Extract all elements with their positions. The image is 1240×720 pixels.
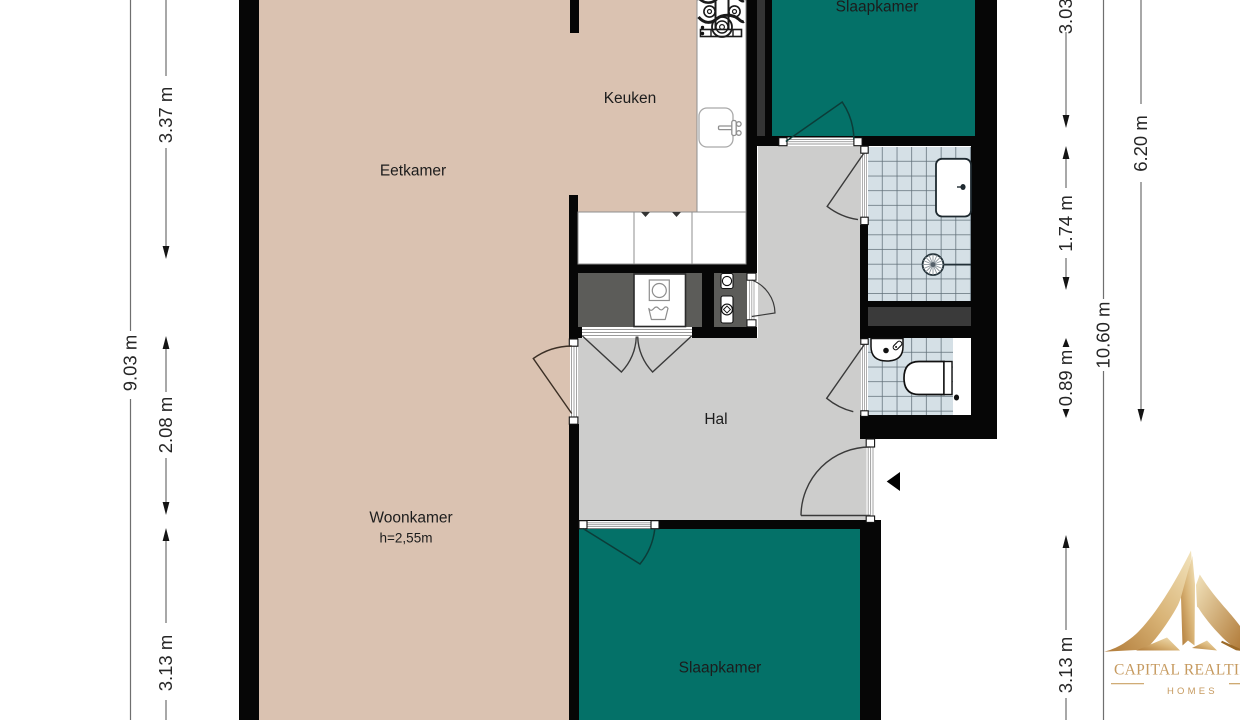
svg-text:1.74 m: 1.74 m (1055, 195, 1076, 252)
svg-text:Slaapkamer: Slaapkamer (679, 660, 762, 677)
svg-text:Eetkamer: Eetkamer (380, 163, 446, 180)
svg-text:10.60 m: 10.60 m (1093, 302, 1114, 369)
svg-text:Hal: Hal (704, 411, 727, 428)
svg-text:CAPITAL REALTIES: CAPITAL REALTIES (1114, 662, 1240, 679)
svg-text:Slaapkamer: Slaapkamer (836, 0, 919, 16)
svg-text:0.89 m: 0.89 m (1055, 350, 1076, 407)
svg-text:Keuken: Keuken (604, 90, 657, 107)
svg-text:3.03 m: 3.03 m (1055, 0, 1076, 34)
svg-text:Woonkamer: Woonkamer (369, 510, 452, 527)
svg-text:3.37 m: 3.37 m (155, 87, 176, 144)
svg-text:6.20 m: 6.20 m (1130, 115, 1151, 172)
svg-text:3.13 m: 3.13 m (1055, 637, 1076, 694)
svg-text:HOMES: HOMES (1167, 686, 1218, 697)
svg-text:9.03 m: 9.03 m (120, 335, 141, 392)
svg-text:2.08 m: 2.08 m (155, 397, 176, 454)
svg-text:3.13 m: 3.13 m (155, 635, 176, 692)
svg-text:h=2,55m: h=2,55m (380, 531, 433, 546)
